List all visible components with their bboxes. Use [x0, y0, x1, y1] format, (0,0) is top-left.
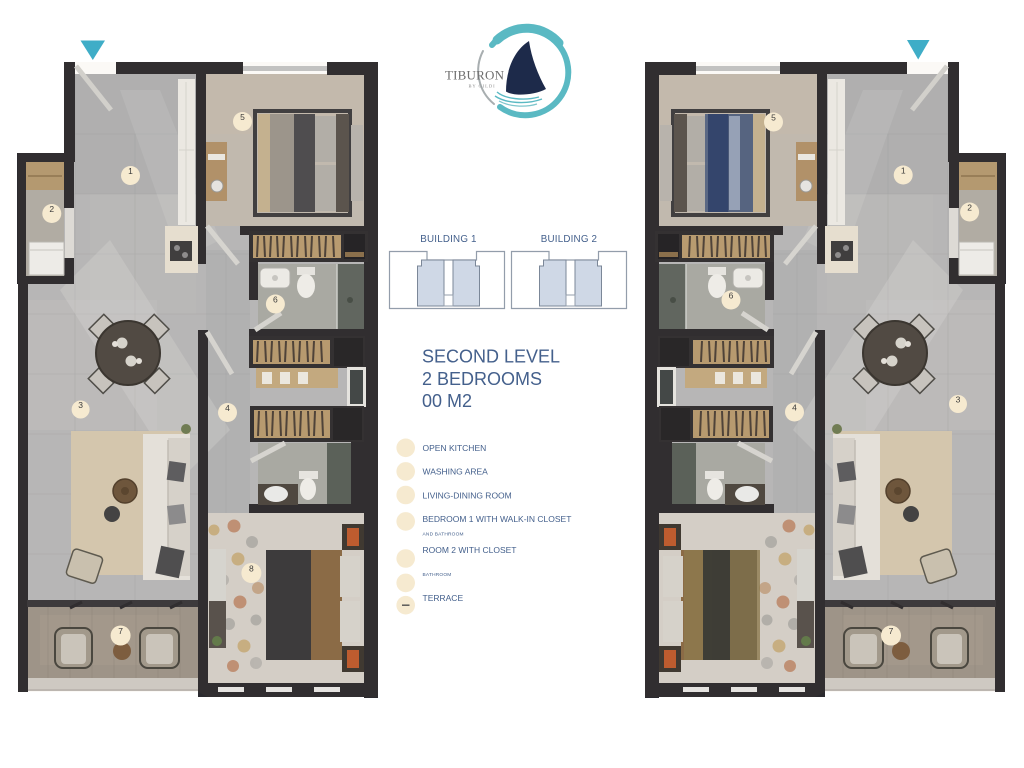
svg-text:SECOND LEVEL: SECOND LEVEL [422, 347, 560, 367]
svg-text:8: 8 [249, 564, 254, 574]
svg-text:6: 6 [729, 291, 734, 301]
svg-text:2: 2 [49, 204, 54, 214]
svg-text:ROOM 2 WITH CLOSET: ROOM 2 WITH CLOSET [423, 545, 517, 555]
svg-text:TERRACE: TERRACE [423, 593, 464, 603]
svg-text:00 M2: 00 M2 [422, 391, 472, 411]
svg-text:5: 5 [240, 112, 245, 122]
svg-text:BATHROOM: BATHROOM [423, 572, 452, 578]
svg-text:2 BEDROOMS: 2 BEDROOMS [422, 369, 542, 389]
svg-text:5: 5 [771, 113, 776, 123]
svg-text:AND BATHROOM: AND BATHROOM [423, 532, 464, 538]
svg-text:BY GILDI: BY GILDI [468, 84, 495, 89]
svg-text:6: 6 [273, 295, 278, 305]
svg-text:3: 3 [956, 395, 961, 405]
svg-text:7: 7 [118, 626, 123, 636]
svg-text:BUILDING 2: BUILDING 2 [541, 234, 597, 245]
svg-text:WASHING AREA: WASHING AREA [423, 467, 489, 477]
svg-text:1: 1 [901, 166, 906, 176]
svg-text:BEDROOM 1 WITH WALK-IN CLOSET: BEDROOM 1 WITH WALK-IN CLOSET [423, 514, 572, 524]
svg-text:4: 4 [792, 403, 797, 413]
svg-text:OPEN KITCHEN: OPEN KITCHEN [423, 443, 487, 453]
svg-text:2: 2 [967, 203, 972, 213]
svg-text:LIVING-DINING ROOM: LIVING-DINING ROOM [423, 490, 512, 500]
svg-text:4: 4 [225, 403, 230, 413]
svg-text:7: 7 [889, 626, 894, 636]
svg-text:1: 1 [128, 166, 133, 176]
svg-text:TIBURON: TIBURON [445, 68, 505, 83]
svg-text:BUILDING 1: BUILDING 1 [420, 234, 476, 245]
svg-text:3: 3 [78, 400, 83, 410]
